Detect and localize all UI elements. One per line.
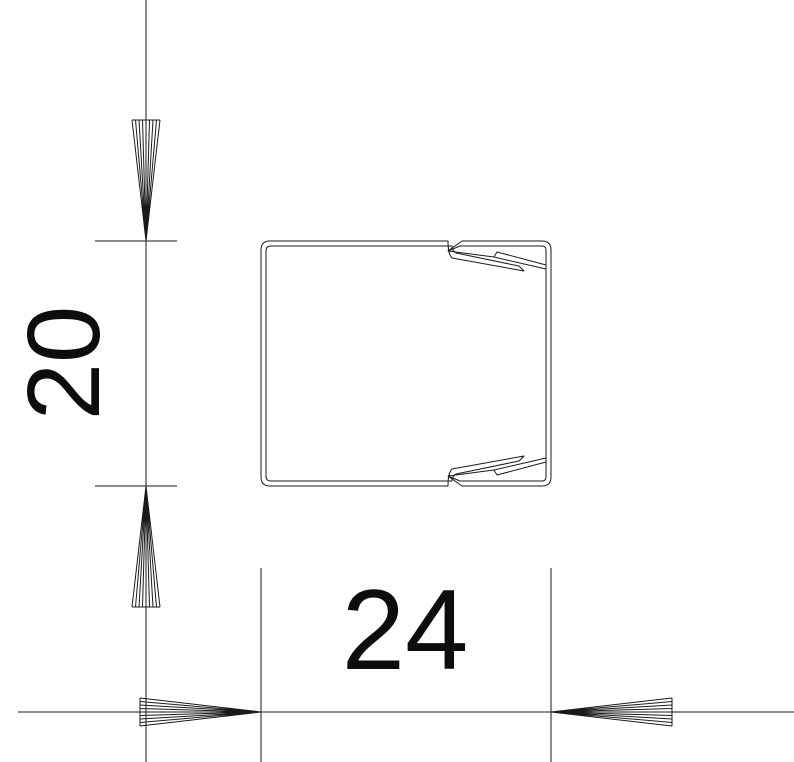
- profile-body-outline: [261, 241, 524, 486]
- dimension-arrow-down-icon: [132, 120, 160, 241]
- profile-cross-section: [261, 241, 551, 486]
- height-dimension-label: 20: [6, 306, 121, 421]
- technical-drawing-canvas: 20 24: [0, 0, 794, 762]
- width-dimension-label: 24: [342, 567, 469, 694]
- dimension-arrow-left-icon: [551, 698, 672, 726]
- profile-cover-outline: [448, 241, 551, 486]
- technical-drawing-page: 20 24: [0, 0, 794, 762]
- height-dimension: 20: [6, 0, 177, 762]
- width-dimension: 24: [18, 567, 794, 762]
- dimension-arrow-right-icon: [140, 698, 261, 726]
- dimension-arrow-up-icon: [132, 486, 160, 607]
